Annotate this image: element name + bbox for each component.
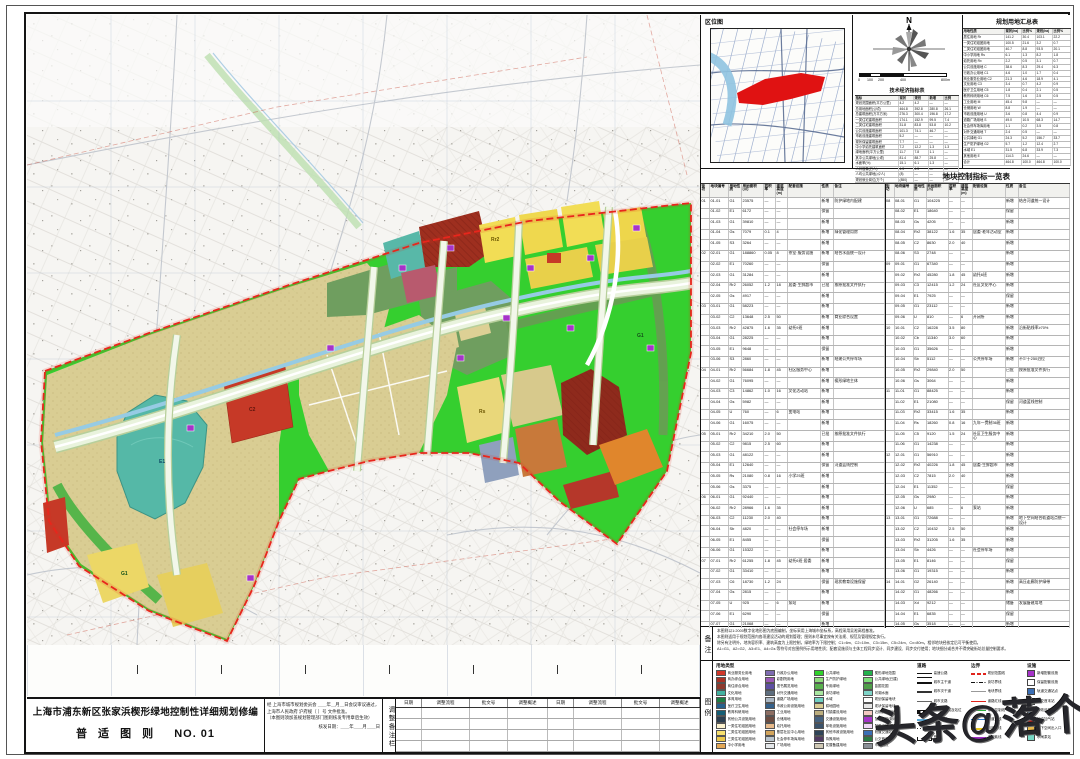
- table-cell: 05-02: [710, 442, 729, 452]
- table-cell: 对外交通用地 T: [963, 130, 1005, 135]
- table-cell: 茶室·服务设施: [788, 251, 821, 261]
- table-cell: [973, 304, 1006, 314]
- table-cell: [1019, 505, 1071, 515]
- table-cell: G1: [729, 198, 742, 208]
- table-cell: 其他用地 E: [963, 154, 1005, 159]
- table-cell: [886, 505, 895, 515]
- table-cell: —: [776, 590, 788, 600]
- table-cell: 7.4: [944, 118, 959, 122]
- table-cell: 小学25班: [788, 473, 821, 483]
- table-cell: 配套设施: [973, 184, 1006, 197]
- legend-item: 城市主干道: [917, 678, 969, 687]
- table-cell: 11: [886, 389, 895, 399]
- table-row: 05-03G148122——新增: [701, 452, 885, 463]
- table-cell: 4.2: [914, 101, 929, 105]
- table-cell: E1: [729, 537, 742, 547]
- table-cell: 07: [701, 558, 710, 568]
- table-cell: 1.6: [764, 505, 776, 515]
- table-cell: [834, 368, 885, 378]
- table-row: 04-05U760—6变电站新增: [701, 410, 885, 421]
- table-cell: 4.4: [1036, 112, 1053, 117]
- table-cell: 3.2: [1036, 41, 1053, 46]
- strip-tick: [389, 665, 390, 674]
- table-cell: 300.4: [914, 112, 929, 116]
- table-cell: 10-06: [895, 378, 914, 388]
- table-cell: 11230: [742, 516, 764, 526]
- table-cell: Gs: [729, 399, 742, 409]
- table-cell: 0.5: [1022, 59, 1036, 64]
- table-row: 09-03C3124151.224社区文化中心新增: [886, 283, 1071, 294]
- legend-swatch: [716, 690, 726, 696]
- legend-item: 街坊绿地: [814, 690, 863, 697]
- table-cell: 1.8: [1053, 53, 1071, 58]
- table-cell: 4.2: [899, 101, 914, 105]
- table-cell: 11-04: [895, 420, 914, 430]
- table-cell: S3: [914, 251, 927, 261]
- table-cell: —: [776, 304, 788, 314]
- legend-item-label: 教育科研用地: [728, 710, 749, 715]
- wind-rose: [892, 29, 929, 67]
- table-cell: 392.8: [914, 107, 929, 111]
- table-cell: —: [949, 262, 961, 272]
- table-cell: 07-02: [710, 569, 729, 579]
- table-row: 11-02E121080——保留河道蓝线控制: [886, 399, 1071, 410]
- table-cell: 建筑高度(m): [961, 184, 973, 197]
- table-cell: —: [764, 198, 776, 208]
- table-cell: [886, 251, 895, 261]
- legend-swatch: [863, 710, 873, 716]
- table-row: 06-03C2112302.040新增: [701, 516, 885, 527]
- table-cell: 保留: [821, 346, 834, 356]
- table-cell: [834, 293, 885, 303]
- table-row: 02-03G131284——新增: [701, 272, 885, 283]
- legend-item: 其他市政设施用地: [814, 729, 863, 736]
- table-cell: 新增: [821, 325, 834, 335]
- table-cell: 一类住宅组团用地: [963, 41, 1005, 46]
- table-cell: [788, 240, 821, 250]
- table-cell: [1019, 336, 1071, 346]
- table-cell: [1019, 442, 1071, 452]
- table-cell: —: [776, 293, 788, 303]
- legend-swatch: [863, 743, 873, 749]
- table-row: 13-03Rr2312051.635新增: [886, 537, 1071, 548]
- approval-line: 核发日期：＿＿年＿＿月＿＿日: [267, 724, 380, 731]
- table-cell: Gs: [729, 230, 742, 240]
- svg-text:G1: G1: [121, 571, 128, 577]
- table-cell: 日期: [548, 699, 574, 707]
- table-cell: G1: [729, 569, 742, 579]
- adjustment-empty-row: [396, 741, 700, 752]
- table-cell: 100.0: [1022, 160, 1036, 165]
- table-cell: 02-01: [710, 251, 729, 261]
- table-cell: 04-03: [710, 389, 729, 399]
- legend-item: 医疗卫生用地: [716, 703, 765, 710]
- table-cell: [834, 569, 885, 579]
- table-cell: [788, 346, 821, 356]
- scale-label: 800m: [941, 78, 950, 82]
- table-row: 01-04Gs70790.14新增绿化管理用房: [701, 230, 885, 241]
- table-row: 04-04Gs5982——新增: [701, 399, 885, 410]
- table-cell: C2: [729, 442, 742, 452]
- table-cell: [834, 410, 885, 420]
- notes-body: 本图则以1:2000数字化地形图为底图编制，坐标采用上海城市坐标系，高程采用吴淞…: [713, 627, 1070, 660]
- table-cell: [886, 611, 895, 621]
- table-cell: 24.3: [1005, 136, 1022, 141]
- table-cell: 5.2: [1022, 136, 1036, 141]
- legend-swatch: [716, 743, 726, 749]
- table-cell: [973, 579, 1006, 589]
- table-cell: 保留: [1006, 399, 1019, 409]
- table-cell: 新增: [1006, 198, 1019, 208]
- table-cell: 按原批准文件执行: [834, 431, 885, 441]
- legend-swatch: [765, 716, 775, 722]
- table-cell: 1.1: [1005, 124, 1022, 129]
- table-cell: 保留: [1006, 293, 1019, 303]
- table-cell: 绿地面积(平方公里): [855, 150, 899, 154]
- table-cell: 新增: [821, 219, 834, 229]
- table-cell: [701, 293, 710, 303]
- table-cell: [788, 378, 821, 388]
- legend-item: 规划范围线: [971, 669, 1025, 678]
- table-cell: 新增: [1006, 346, 1019, 356]
- table-cell: —: [944, 161, 959, 165]
- table-cell: 6290: [742, 611, 764, 621]
- table-cell: —: [776, 198, 788, 208]
- table-cell: [834, 484, 885, 494]
- table-cell: C6: [729, 579, 742, 589]
- table-cell: [834, 495, 885, 505]
- legend-swatch: [863, 736, 873, 742]
- table-cell: —: [776, 484, 788, 494]
- table-cell: —: [949, 558, 961, 568]
- table-cell: [973, 262, 1006, 272]
- reddash-line-icon: [971, 671, 986, 676]
- table-row: 07-04Gs2815——新增: [701, 590, 885, 601]
- table-cell: 10-05: [895, 368, 914, 378]
- table-cell: [886, 601, 895, 611]
- table-cell: 7079: [742, 230, 764, 240]
- table-cell: 03-03: [710, 325, 729, 335]
- table-cell: 新增: [821, 198, 834, 208]
- table-cell: 196.8: [929, 112, 944, 116]
- table-row: 14-02G148266——新增: [886, 590, 1071, 601]
- table-cell: [788, 262, 821, 272]
- table-cell: 1.6: [1022, 94, 1036, 99]
- table-cell: 12415: [927, 283, 949, 293]
- table-cell: 16228: [927, 325, 949, 335]
- table-cell: 50: [776, 315, 788, 325]
- table-cell: 1.3: [929, 161, 944, 165]
- table-cell: 二类住宅组团用地: [963, 47, 1005, 52]
- table-cell: 新增: [821, 558, 834, 568]
- table-cell: 结建公共停车场: [834, 357, 885, 367]
- table-cell: [973, 325, 1006, 335]
- table-cell: 26140: [927, 579, 949, 589]
- table-cell: 21080: [927, 399, 949, 409]
- table-cell: 1.1: [929, 150, 944, 154]
- table-cell: E1: [729, 346, 742, 356]
- table-cell: —: [961, 548, 973, 558]
- table-cell: 比例%: [1022, 29, 1036, 34]
- table-cell: —: [949, 251, 961, 261]
- table-cell: —: [764, 420, 776, 430]
- table-cell: —: [961, 251, 973, 261]
- legend-item-label: 新增配套设施: [1037, 671, 1058, 676]
- table-cell: 新增: [821, 378, 834, 388]
- table-cell: 备注: [834, 184, 885, 197]
- legend-item-label: 幼托用地: [777, 724, 791, 729]
- table-cell: 20.1: [1053, 47, 1071, 52]
- table-cell: 9.8: [1022, 100, 1036, 105]
- table-cell: 38122: [927, 230, 949, 240]
- legend-swatch: [814, 743, 824, 749]
- table-cell: 12.4: [1036, 142, 1053, 147]
- legend-item-label: 广场用地: [777, 743, 791, 748]
- table-row: 08-03Gs4205——新增: [886, 219, 1071, 230]
- table-cell: [788, 209, 821, 219]
- table-cell: 24: [961, 431, 973, 441]
- table-cell: 50: [776, 431, 788, 441]
- table-cell: 新增: [821, 389, 834, 399]
- table-cell: —: [949, 293, 961, 303]
- table-cell: —: [961, 442, 973, 452]
- table-row: 03-05E19648——保留: [701, 346, 885, 357]
- table-cell: [973, 526, 1006, 536]
- table-cell: 市政设施用地 U: [963, 112, 1005, 117]
- table-cell: 社会停车场: [788, 526, 821, 536]
- table-cell: 教育科研用地 C6: [963, 94, 1005, 99]
- table-cell: 06-03: [710, 516, 729, 526]
- scale-bar: 0 100 200 400 800m: [859, 73, 957, 85]
- planning-map: G1 E1 Rr2 C2 G1 Rs: [27, 15, 700, 645]
- table-cell: [973, 219, 1006, 229]
- table-cell: 二类住宅建筑面积: [855, 123, 899, 127]
- table-cell: [834, 399, 885, 409]
- table-cell: 新增: [821, 516, 834, 526]
- legend-swatch: [814, 716, 824, 722]
- table-cell: [886, 357, 895, 367]
- table-cell: 4.2: [1036, 82, 1053, 87]
- legend-swatch: [814, 683, 824, 689]
- table-cell: [886, 209, 895, 219]
- table-cell: 1.9: [1022, 106, 1036, 111]
- table-row: 08-05C286302.040新增: [886, 240, 1071, 251]
- legend-item: 图书展览用地: [765, 683, 814, 690]
- table-cell: C3: [914, 283, 927, 293]
- table-cell: —: [776, 378, 788, 388]
- legend-item-label: 规划范围线: [988, 671, 1006, 676]
- table-cell: Rr2: [729, 505, 742, 515]
- legend-landuse-title: 用地类型: [716, 663, 914, 669]
- legend-item: 水域: [814, 696, 863, 703]
- table-cell: 760: [742, 410, 764, 420]
- table-cell: 05-01: [710, 431, 729, 441]
- table-cell: E1: [914, 293, 927, 303]
- legend-item: 耕地园地: [814, 703, 863, 710]
- table-cell: 33.7: [1053, 136, 1071, 141]
- table-row: 06-05E18455——保留: [701, 537, 885, 548]
- table-cell: —: [764, 611, 776, 621]
- table-row: 10-04Sb5112——公共停车场新增不少于250泊位: [886, 357, 1071, 368]
- table-cell: 1.8: [949, 272, 961, 282]
- legend-swatch: [716, 710, 726, 716]
- table-row: 1313-01G172688——新增地下空间结合轨道站点统一设计: [886, 516, 1071, 527]
- table-cell: 道路广场用地 S: [963, 118, 1005, 123]
- table-cell: [788, 198, 821, 208]
- table-cell: 新增: [821, 410, 834, 420]
- table-cell: [886, 410, 895, 420]
- table-cell: 新增: [821, 495, 834, 505]
- table-cell: 新增: [1006, 537, 1019, 547]
- table-cell: [973, 198, 1006, 208]
- table-cell: Gs: [914, 495, 927, 505]
- plot-table-left: 街坊地块编号用地性质用地面积(㎡)容积率建筑高度(m)配套设施性质备注0101-…: [701, 184, 886, 628]
- legend-item-label: 交通设施用地: [826, 717, 847, 722]
- table-cell: [973, 240, 1006, 250]
- table-cell: —: [776, 537, 788, 547]
- table-cell: 新增: [821, 526, 834, 536]
- table-cell: 保留: [821, 262, 834, 272]
- title-block: 上海市浦东新区张家浜楔形绿地控制性详细规划修编 普 适 图 则 NO. 01 经…: [27, 697, 700, 752]
- table-cell: 水面率(%): [855, 161, 899, 165]
- table-cell: 5.2: [899, 134, 914, 138]
- table-cell: [886, 442, 895, 452]
- table-cell: [788, 537, 821, 547]
- double-line-icon: [917, 671, 932, 676]
- table-cell: [701, 442, 710, 452]
- legend-item: 文化用地: [716, 690, 765, 697]
- table-cell: 12: [886, 452, 895, 462]
- legend-item-label: 文化用地: [728, 691, 742, 696]
- table-cell: 06-02: [710, 505, 729, 515]
- table-cell: 80: [961, 325, 973, 335]
- legend-swatch: [863, 730, 873, 736]
- table-cell: 07-04: [710, 590, 729, 600]
- table-cell: —: [961, 399, 973, 409]
- table-cell: G1: [914, 516, 927, 526]
- table-row: 12-03C278152.040新增: [886, 473, 1071, 484]
- table-cell: —: [1053, 130, 1071, 135]
- table-cell: 9648: [742, 346, 764, 356]
- table-row: 06-02Rr2289661.635新增: [701, 505, 885, 516]
- table-cell: 0.4: [1053, 71, 1071, 76]
- table-cell: 新增: [1006, 420, 1019, 430]
- table-cell: Gs: [729, 484, 742, 494]
- table-cell: 保留: [821, 537, 834, 547]
- table-cell: —: [1053, 100, 1071, 105]
- table-cell: [973, 516, 1006, 526]
- svg-text:C2: C2: [249, 407, 256, 413]
- table-cell: 1.2: [764, 283, 776, 293]
- table-cell: [834, 526, 885, 536]
- table-cell: 7.2: [899, 145, 914, 149]
- table-cell: [886, 368, 895, 378]
- table-cell: 1.5: [949, 431, 961, 441]
- legend-item-label: 图书展览用地: [777, 684, 798, 689]
- table-cell: —: [961, 579, 973, 589]
- table-cell: 现状: [899, 96, 914, 100]
- legend-item-label: 影剧院用地: [777, 677, 795, 682]
- table-cell: 93.5: [1036, 47, 1053, 52]
- table-cell: [973, 537, 1006, 547]
- table-cell: [973, 293, 1006, 303]
- table-cell: G1: [914, 442, 927, 452]
- table-cell: 03-05: [710, 346, 729, 356]
- table-cell: [973, 590, 1006, 600]
- table-cell: 1.8: [1005, 88, 1022, 93]
- table-cell: [834, 442, 885, 452]
- table-cell: 1.8: [949, 463, 961, 473]
- table-cell: 14: [886, 579, 895, 589]
- table-row: 03-02C2136482.550新增商业综合设置: [701, 315, 885, 326]
- table-cell: —: [776, 611, 788, 621]
- table-cell: [1019, 452, 1071, 462]
- table-cell: 7.5: [1005, 94, 1022, 99]
- table-cell: [788, 420, 821, 430]
- table-cell: 05-06: [710, 484, 729, 494]
- table-cell: [701, 346, 710, 356]
- table-cell: Gs: [729, 293, 742, 303]
- table-cell: 保留: [1006, 611, 1019, 621]
- table-cell: 11-01: [895, 389, 914, 399]
- legend-item: 商业服务业用地: [716, 670, 765, 677]
- table-cell: 05: [701, 431, 710, 441]
- table-cell: [834, 389, 885, 399]
- legend-swatch: [765, 670, 775, 676]
- table-cell: 4.6: [1005, 71, 1022, 76]
- table-cell: 09-03: [895, 283, 914, 293]
- strip-tick: [473, 665, 474, 674]
- table-cell: 06-04: [710, 526, 729, 536]
- table-cell: 8: [776, 251, 788, 261]
- table-cell: 防护绿地内配建: [834, 198, 885, 208]
- table-cell: 74.1: [914, 129, 929, 133]
- table-cell: 高压走廊防护绿带: [1019, 579, 1071, 589]
- legend-item-label: 耕地园地: [826, 704, 840, 709]
- right-panel: 区位图 N: [700, 15, 1070, 752]
- table-cell: 18260: [927, 420, 949, 430]
- table-row: 09-04E17925——保留: [886, 293, 1071, 304]
- table-cell: 01-05: [710, 240, 729, 250]
- table-cell: 总用地面积(公顷): [855, 107, 899, 111]
- legend-item-label: 其他市政设施用地: [826, 730, 854, 735]
- table-cell: 464.8: [899, 107, 914, 111]
- table-cell: [788, 463, 821, 473]
- table-cell: [834, 611, 885, 621]
- table-cell: 新增: [1006, 590, 1019, 600]
- table-cell: 40: [961, 473, 973, 483]
- legend-swatch: [765, 703, 775, 709]
- table-cell: 31284: [742, 272, 764, 282]
- table-cell: 68.3: [1036, 118, 1053, 123]
- svg-text:Rr2: Rr2: [491, 237, 500, 243]
- legend-swatch: [765, 677, 775, 683]
- legend-item-label: 对外交通用地: [777, 691, 798, 696]
- table-cell: 新增: [1006, 230, 1019, 240]
- legend-item: 新增配套设施: [1027, 669, 1080, 678]
- legend-swatch: [863, 723, 873, 729]
- table-cell: 8146: [927, 558, 949, 568]
- table-cell: 5112: [927, 357, 949, 367]
- table-cell: [701, 601, 710, 611]
- legend-item-label: 工业用地: [777, 710, 791, 715]
- legend-item-label: 基层社区中心用地: [777, 730, 805, 735]
- table-cell: 新增: [1006, 283, 1019, 293]
- table-cell: [834, 473, 885, 483]
- table-cell: —: [944, 129, 959, 133]
- legend-item: 二类住宅组团用地: [716, 729, 765, 736]
- table-cell: [701, 410, 710, 420]
